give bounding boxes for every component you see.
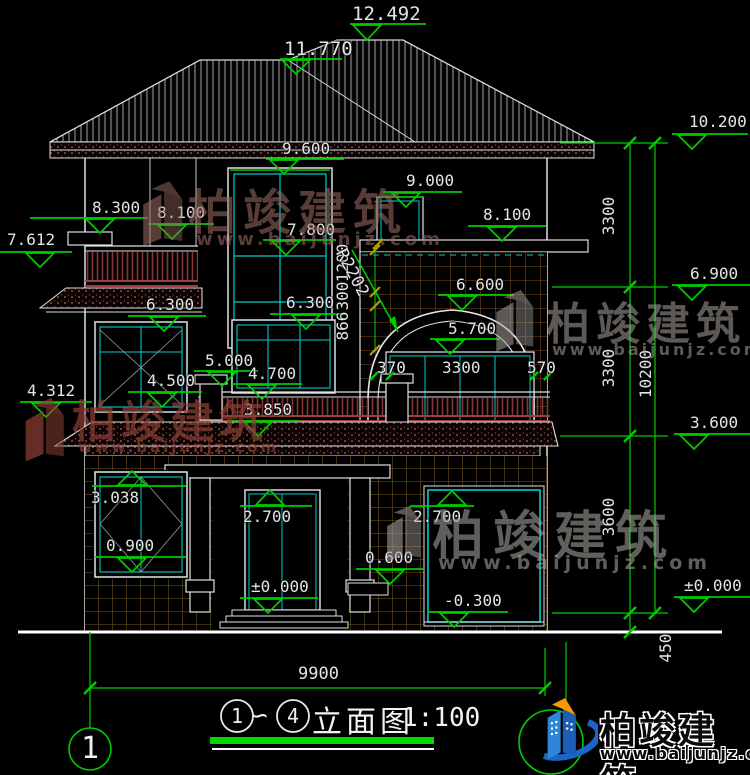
drawing-title: 立面图: [312, 697, 414, 741]
watermark-url: www.baijunjz.com: [78, 438, 279, 456]
elevation-label-3600: 3.600: [690, 414, 738, 432]
elevation-label-0900: 0.900: [106, 537, 154, 555]
elevation-label-3038: 3.038: [91, 489, 139, 507]
axis-bubble-1-label: 1: [68, 731, 112, 766]
elevation-label-11770: 11.770: [284, 39, 353, 60]
elevation-label-10200: 10.200: [689, 113, 747, 131]
watermark-url: www.baijunjz.com: [438, 552, 712, 574]
watermark: 柏竣建筑 www.baijunjz.com: [20, 382, 250, 472]
company-logo-icon: [532, 696, 598, 772]
company-logo-url: www.baijunjz.com: [600, 744, 750, 763]
dim-label-9900: 9900: [298, 665, 339, 684]
elevation-label-6900: 6.900: [690, 265, 738, 283]
watermark-url: www.baijunjz.com: [196, 229, 444, 250]
title-bubble-to: 4: [277, 700, 309, 732]
title-bubble-from: 1: [221, 700, 253, 732]
elevation-label-8100-right: 8.100: [483, 206, 531, 224]
watermark-logo-icon: [488, 290, 544, 354]
watermark: 柏竣建筑 www.baijunjz.com: [488, 282, 750, 362]
elevation-label-5000: 5.000: [205, 352, 253, 370]
elevation-label-0000-door: ±0.000: [251, 578, 309, 596]
watermark-logo-icon: [382, 506, 428, 564]
elevation-label-4700: 4.700: [248, 365, 296, 383]
watermark: 柏竣建筑 www.baijunjz.com: [138, 155, 438, 255]
dim-label-3300-upper: 3300: [600, 197, 618, 236]
elevation-drawing-canvas: 12.492 11.770 10.200 9.600 9.000 8.300 8…: [0, 0, 750, 775]
watermark: 柏竣建筑 www.baijunjz.com: [382, 494, 750, 574]
elevation-label-7612: 7.612: [7, 231, 55, 249]
elevation-label-6300-center: 6.300: [286, 294, 334, 312]
elevation-label-12492: 12.492: [352, 4, 421, 25]
dim-label-3300-window: 3300: [442, 359, 481, 377]
watermark-logo-icon: [20, 398, 72, 464]
drawing-scale: 1:100: [402, 703, 480, 733]
title-tilde: ∽: [252, 701, 268, 731]
watermark-url: www.baijunjz.com: [552, 340, 750, 359]
dim-label-370: 370: [377, 359, 406, 377]
dim-label-866: 866: [334, 312, 352, 341]
elevation-label-8300: 8.300: [92, 199, 140, 217]
elevation-label-minus-0300: -0.300: [444, 592, 502, 610]
dim-label-450: 450: [657, 634, 675, 663]
watermark-logo-icon: [138, 181, 190, 249]
elevation-label-2700-door: 2.700: [243, 508, 291, 526]
company-logo-brand: 柏竣建筑: [600, 702, 750, 775]
elevation-label-0000-right: ±0.000: [684, 577, 742, 595]
elevation-label-6300-left: 6.300: [146, 296, 194, 314]
